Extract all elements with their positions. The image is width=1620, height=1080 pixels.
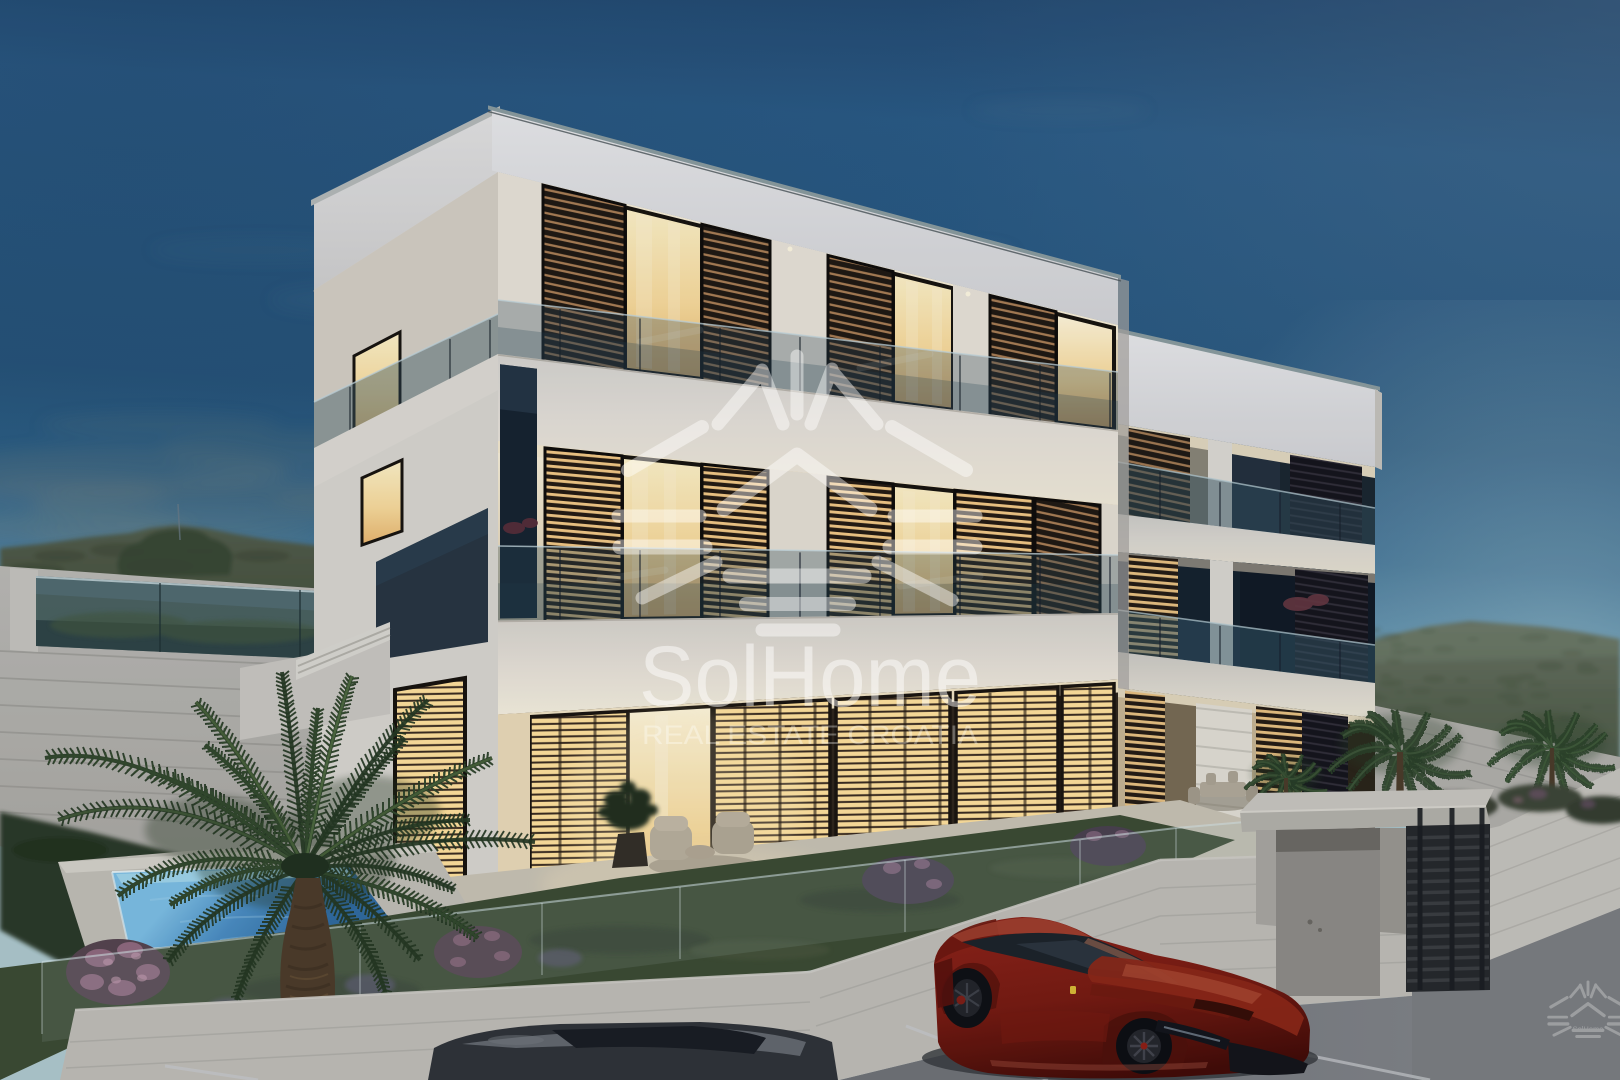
svg-text:SolHome: SolHome [1573, 1025, 1604, 1034]
svg-text:SolHome: SolHome [639, 629, 981, 725]
svg-text:REAL ESTATE CROATIA: REAL ESTATE CROATIA [642, 720, 978, 750]
